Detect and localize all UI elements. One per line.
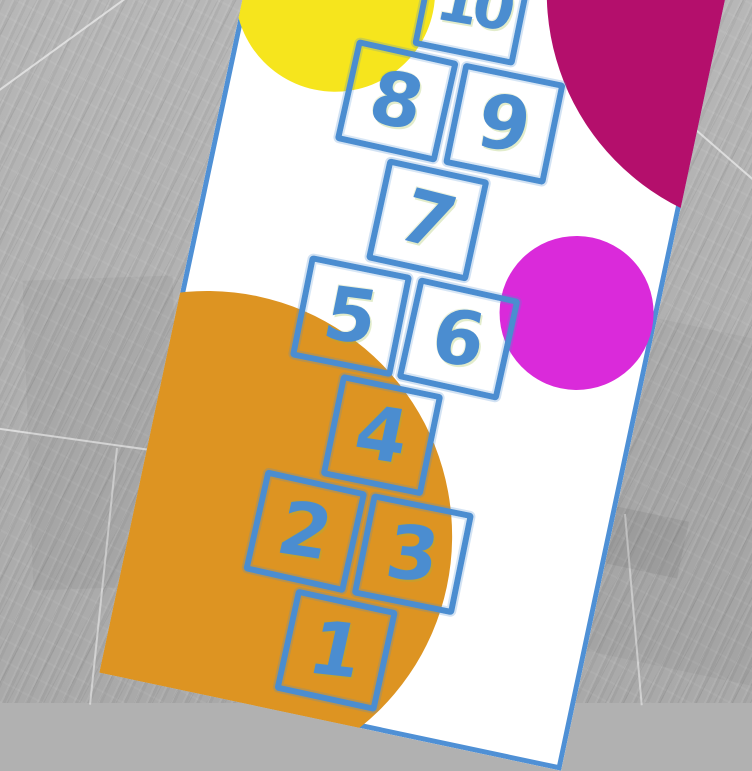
square-number: 1 — [303, 611, 370, 689]
square-number: 9 — [473, 85, 537, 163]
hopscotch-square-9[interactable]: 9 — [443, 62, 566, 185]
hopscotch-square-1[interactable]: 1 — [274, 588, 398, 712]
square-number: 3 — [382, 515, 444, 592]
hopscotch-square-7[interactable]: 7 — [366, 158, 490, 282]
floor-seam — [0, 0, 134, 95]
square-number: 7 — [390, 179, 464, 262]
square-number: 5 — [318, 276, 384, 355]
square-number: 4 — [349, 395, 415, 475]
square-number: 6 — [427, 300, 491, 378]
square-number: 10 — [432, 0, 516, 40]
hopscotch-square-5[interactable]: 5 — [290, 255, 413, 378]
hopscotch-square-3[interactable]: 3 — [352, 493, 475, 616]
square-number: 2 — [272, 491, 339, 571]
hopscotch-square-6[interactable]: 6 — [397, 277, 521, 401]
square-number: 8 — [363, 60, 430, 141]
floor-seam — [695, 129, 752, 184]
hopscotch-square-8[interactable]: 8 — [335, 39, 459, 163]
hopscotch-square-4[interactable]: 4 — [320, 374, 443, 497]
